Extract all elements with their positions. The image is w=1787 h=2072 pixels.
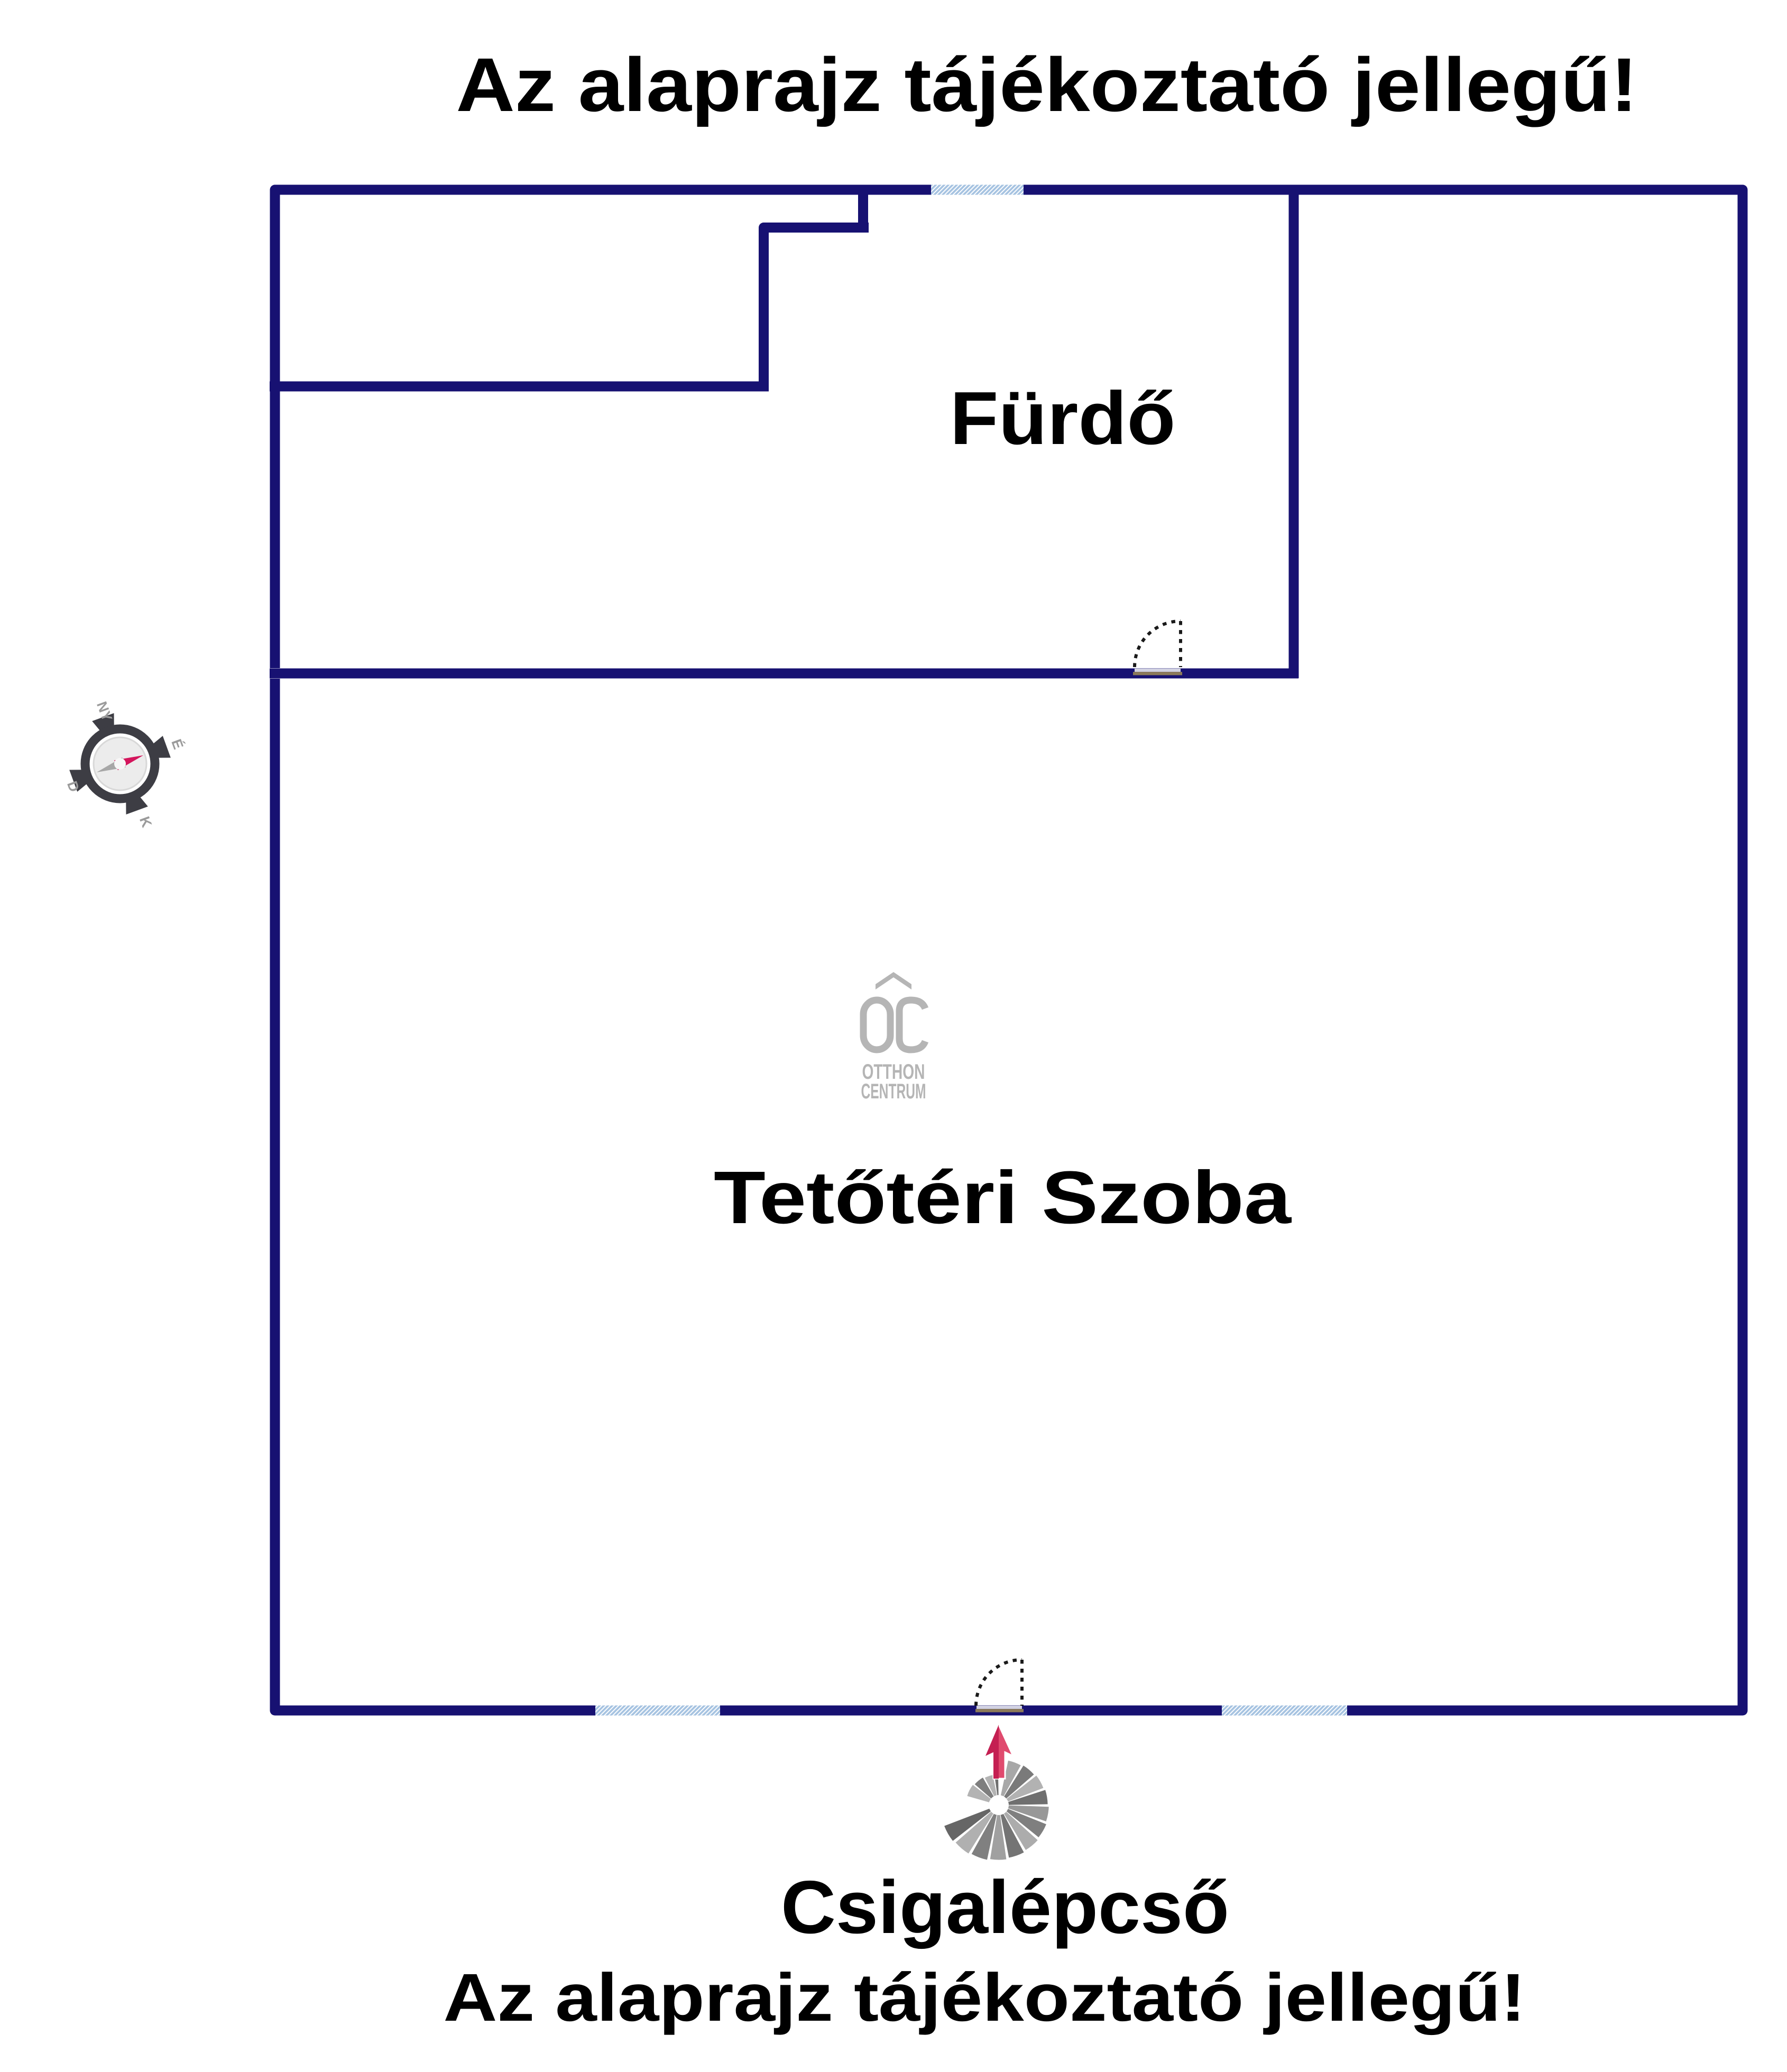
svg-text:CENTRUM: CENTRUM xyxy=(861,1080,926,1103)
svg-text:Csigalépcső: Csigalépcső xyxy=(781,1865,1229,1949)
svg-text:Fürdő: Fürdő xyxy=(950,376,1176,460)
svg-text:Tetőtéri Szoba: Tetőtéri Szoba xyxy=(714,1155,1292,1239)
svg-text:Az alaprajz tájékoztató jelleg: Az alaprajz tájékoztató jellegű! xyxy=(456,42,1638,127)
svg-text:Az alaprajz tájékoztató jelleg: Az alaprajz tájékoztató jellegű! xyxy=(444,1960,1526,2036)
